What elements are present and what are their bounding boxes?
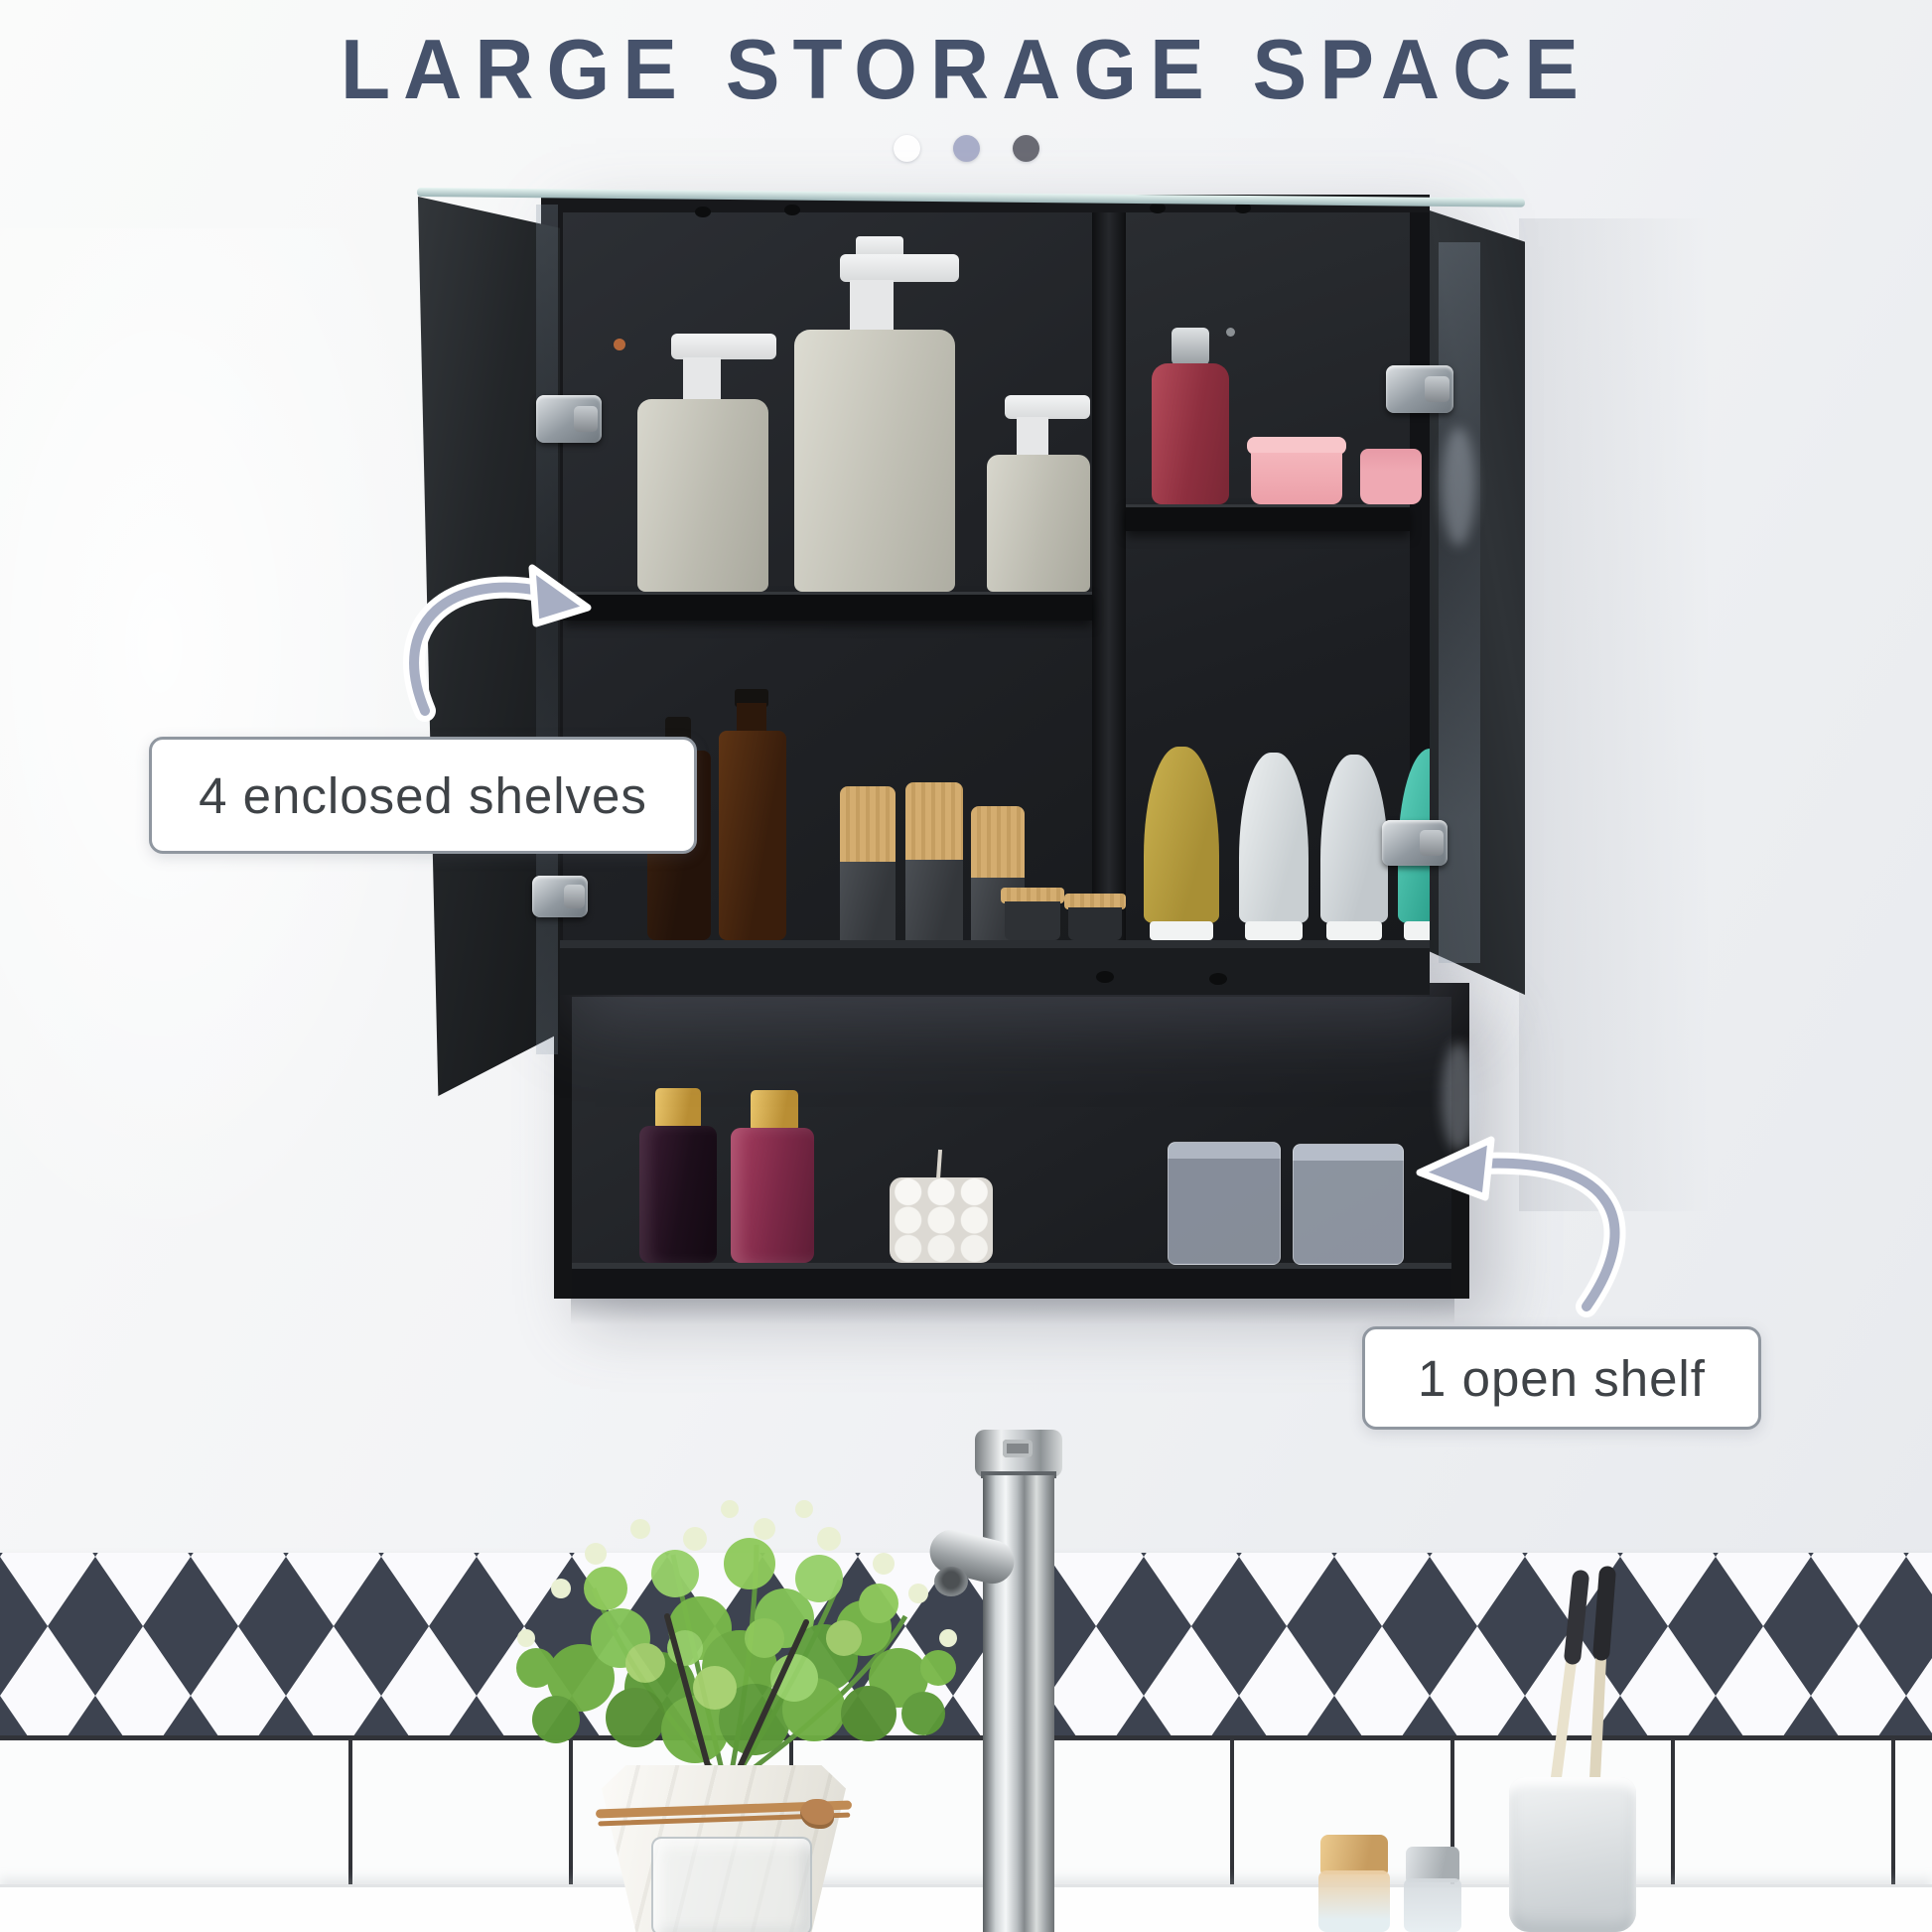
hinge-left-bottom: [532, 876, 588, 917]
pump-bottle-3-body: [987, 455, 1090, 592]
product-infographic-slide: LARGE STORAGE SPACE: [0, 0, 1932, 1932]
screw: [695, 207, 711, 217]
carousel-dot-1[interactable]: [894, 135, 920, 162]
gold-cap-bottle-magenta: [751, 1090, 798, 1132]
faucet-aerator: [934, 1567, 968, 1596]
frosted-container-1: [1168, 1142, 1281, 1265]
spray-1-body: [840, 862, 896, 940]
toothbrush-cup: [1509, 1777, 1636, 1932]
mirror-glint: [1442, 427, 1475, 546]
amber-bottle-2: [719, 731, 786, 940]
white-tile-wall: [0, 1735, 1932, 1886]
cosmetic-jar-gold: [1318, 1870, 1390, 1932]
screw: [614, 339, 625, 350]
pump-bottle-2-head: [840, 254, 959, 282]
faucet-button: [1003, 1440, 1033, 1457]
cosmetic-jar-silver-cap: [1406, 1847, 1459, 1882]
frosted-container-2: [1293, 1144, 1404, 1265]
pump-bottle-1-neck: [683, 357, 721, 401]
red-bottle-cap: [1172, 328, 1209, 365]
callout-enclosed-shelves-label: 4 enclosed shelves: [199, 766, 647, 825]
callout-enclosed-shelves: 4 enclosed shelves: [149, 737, 697, 854]
pump-bottle-2-body: [794, 330, 955, 592]
page-title: LARGE STORAGE SPACE: [0, 22, 1932, 119]
pump-bottle-1-body: [637, 399, 768, 592]
pump-bottle-3-head: [1005, 395, 1090, 419]
red-bottle: [1152, 363, 1229, 504]
pump-bottle-1-head: [671, 334, 776, 359]
callout-open-shelf-label: 1 open shelf: [1418, 1349, 1706, 1408]
wall-shadow: [1519, 218, 1757, 1211]
cabinet-shadow: [571, 1299, 1454, 1324]
countertop: [0, 1884, 1932, 1932]
spray-3-wood-cap: [971, 806, 1025, 880]
screw: [784, 205, 800, 215]
jar-2: [1068, 907, 1122, 940]
travel-tube-white-1-cap: [1245, 921, 1303, 940]
mirror-glint: [1442, 1042, 1475, 1152]
hinge-left-top: [536, 395, 602, 443]
pot-rope-knot: [800, 1799, 834, 1829]
door-left-mirror-edge: [536, 205, 558, 1054]
screw: [1150, 203, 1166, 213]
spray-1-wood-cap: [840, 786, 896, 864]
hinge-right-bottom: [1382, 820, 1448, 866]
spray-2-body: [905, 860, 963, 940]
cabinet-divider: [1092, 212, 1126, 940]
gold-cap-bottle-magenta-body: [731, 1128, 814, 1263]
shelf-left: [563, 592, 1092, 621]
screw: [1226, 328, 1235, 337]
shelf-right: [1126, 504, 1410, 531]
jar-1: [1005, 901, 1060, 940]
cabinet-bottom-board: [541, 940, 1430, 995]
cosmetic-jar-silver: [1404, 1878, 1461, 1932]
travel-tube-olive-cap: [1150, 921, 1213, 940]
pink-jar: [1251, 453, 1342, 504]
carousel-dot-3[interactable]: [1013, 135, 1039, 162]
pump-bottle-2-neck: [850, 280, 894, 332]
screw: [1209, 973, 1227, 985]
gold-cap-bottle-dark-body: [639, 1126, 717, 1263]
travel-tube-white-2-cap: [1326, 921, 1382, 940]
pump-bottle-3-neck: [1017, 417, 1048, 457]
screw: [1096, 971, 1114, 983]
reed-diffuser-bottle: [651, 1837, 812, 1932]
bubble-candle: [890, 1177, 993, 1263]
cosmetic-jar-gold-cap: [1320, 1835, 1388, 1874]
gold-cap-bottle-dark: [655, 1088, 701, 1130]
hinge-right-top: [1386, 365, 1453, 413]
carousel-dots: [0, 135, 1932, 162]
pink-cup: [1360, 449, 1422, 504]
carousel-dot-2[interactable]: [953, 135, 980, 162]
spray-2-wood-cap: [905, 782, 963, 862]
callout-open-shelf: 1 open shelf: [1362, 1326, 1761, 1430]
open-shelf-board: [572, 1263, 1451, 1299]
